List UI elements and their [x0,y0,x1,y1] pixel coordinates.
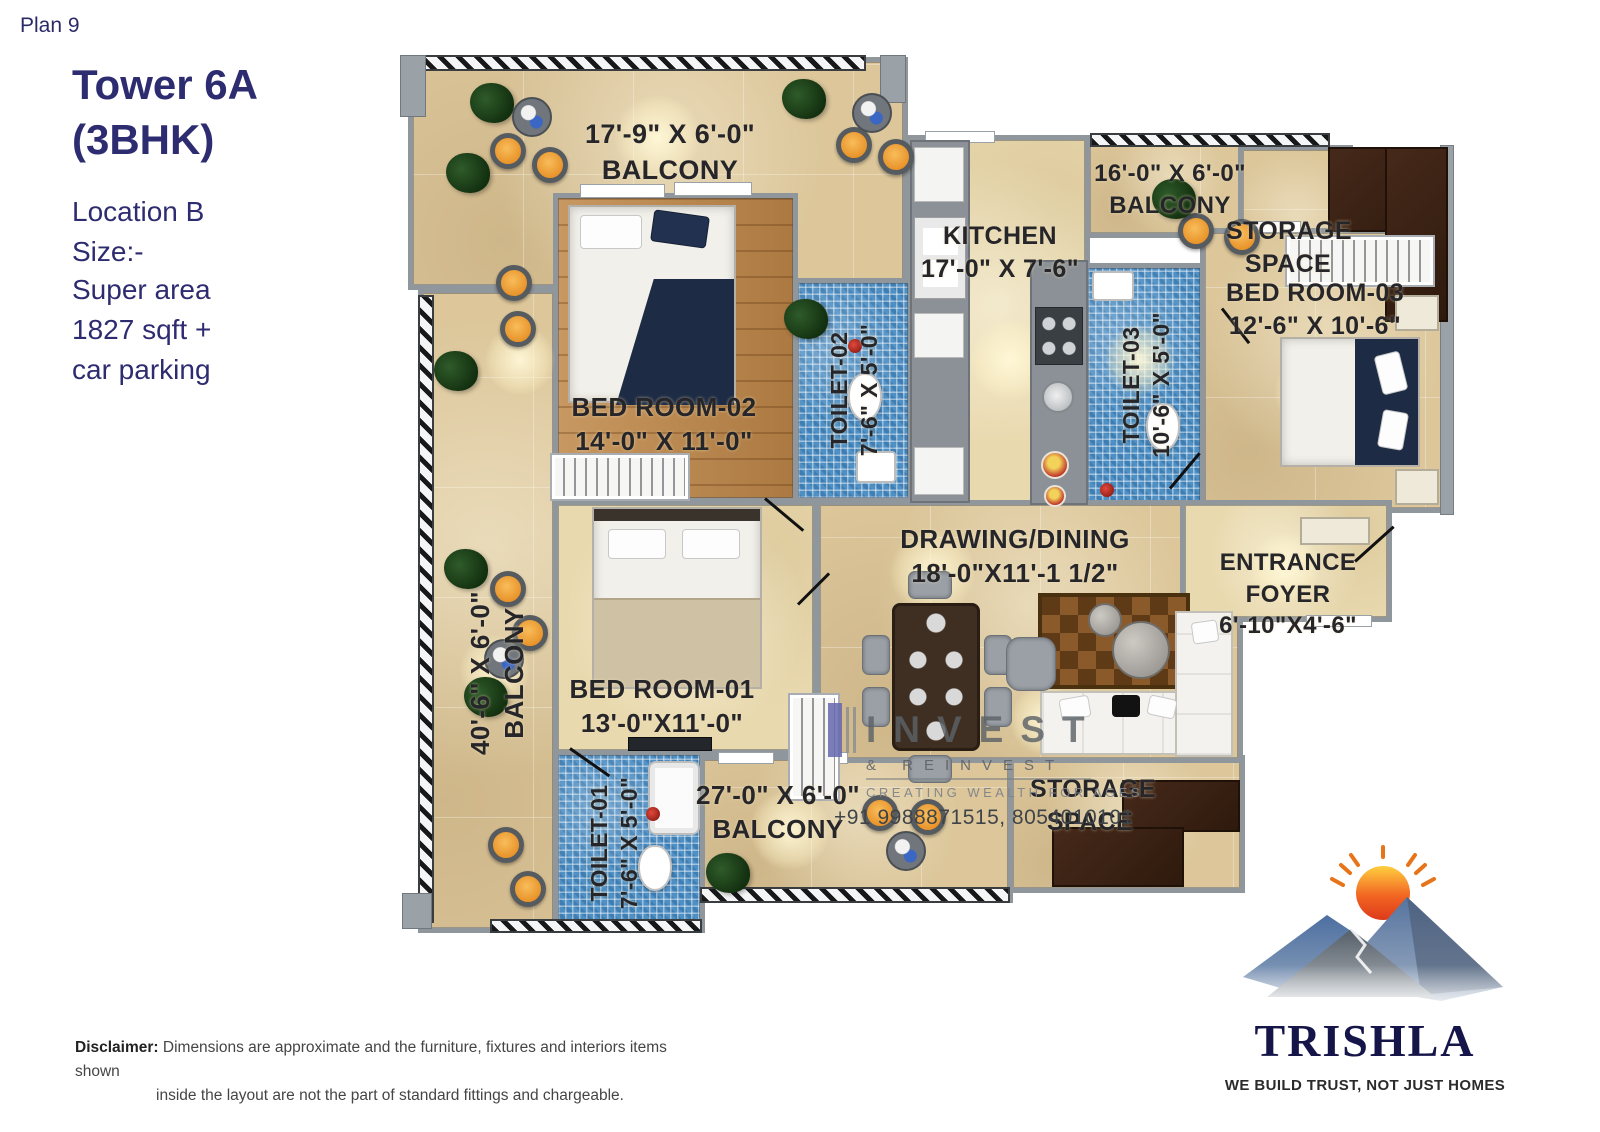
armchair [1006,637,1056,691]
railing-top-right [1090,133,1330,147]
disclaimer-line2: inside the layout are not the part of st… [75,1084,705,1108]
stool [496,265,532,301]
label-bed-room-01: BED ROOM-01 13'-0"X11'-0" [542,672,782,741]
mountain-sun-logo-icon [1215,845,1515,1013]
label-toilet-03: TOILET-03 10'-6" X 5'-0" [1116,290,1172,480]
nightstand [1395,469,1439,505]
location-line: Location B [72,192,204,232]
label-drawing-dining: DRAWING/DINING 18'-0"X11'-1 1/2" [865,522,1165,591]
label-kitchen: KITCHEN 17'-0" X 7'-6" [905,220,1095,286]
trishla-logo: TRISHLA WE BUILD TRUST, NOT JUST HOMES [1215,845,1515,1094]
label-bed-room-03: BED ROOM-03 12'-6" X 10'-6" [1205,277,1425,343]
gas-hob [1035,307,1083,365]
dresser [1300,517,1370,545]
super-area: Super area 1827 sqft + car parking [72,270,211,389]
plant [706,853,750,893]
page-title: Tower 6A (3BHK) [72,58,258,167]
dining-chair [984,687,1012,727]
railing-bottom [700,887,1010,903]
size-line: Size:- [72,232,204,272]
bed [1280,337,1420,467]
fruit-plate [1041,451,1069,479]
label-toilet-02: TOILET-02 7'-6" X 5'-0" [824,295,880,485]
stool [510,871,546,907]
label-balcony-bottom: 27'-0" X 6'-0" BALCONY [628,778,928,847]
plant [434,351,478,391]
flower-pot [1100,483,1114,497]
stool [488,827,524,863]
brand-name: TRISHLA [1215,1014,1515,1067]
window [718,752,774,764]
title-line2: (3BHK) [72,113,258,168]
disclaimer: Disclaimer: Dimensions are approximate a… [75,1036,705,1108]
plant [784,299,828,339]
coffee-table [1088,603,1122,637]
bed [592,507,762,689]
label-entrance-foyer: ENTRANCE FOYER 6'-10"X4'-6" [1183,547,1393,642]
pillow [580,215,642,249]
stool [878,139,914,175]
railing-left [418,295,434,923]
dining-table [892,603,980,751]
floor-plan: 17'-9" X 6'-0" BALCONY KITCHEN 17'-0" X … [400,55,1460,940]
pillar [880,55,906,103]
title-line1: Tower 6A [72,58,258,113]
wardrobe [550,453,690,501]
coffee-table [1112,621,1170,679]
railing-top [410,55,866,71]
disclaimer-line1: Disclaimer: Dimensions are approximate a… [75,1036,705,1084]
sofa-pillow-black [1112,695,1140,717]
refrigerator [914,147,964,202]
pillow [650,209,710,248]
label-balcony-top-right: 16'-0" X 6'-0" BALCONY [1080,158,1260,221]
brand-tagline: WE BUILD TRUST, NOT JUST HOMES [1215,1077,1515,1094]
bed-frame [594,509,760,521]
plan-label: Plan 9 [20,14,80,38]
label-balcony-left: 40'-6" X 6'-0" BALCONY [463,533,521,813]
pillow [682,529,740,559]
round-sink [1042,381,1074,413]
kitchen-cabinet [914,313,964,358]
side-table [852,93,892,133]
label-balcony-top: 17'-9" X 6'-0" BALCONY [520,117,820,188]
fruit-plate [1044,485,1066,507]
blanket [616,279,734,405]
dining-chair [862,635,890,675]
pillow [608,529,666,559]
kitchen-cabinet [914,447,964,495]
bed [568,205,736,403]
label-toilet-01: TOILET-01 7'-6" X 5'-0" [584,748,640,938]
plant [470,83,514,123]
pillar [400,55,426,117]
plant [782,79,826,119]
dining-chair [862,687,890,727]
label-bed-room-02: BED ROOM-02 14'-0" X 11'-0" [544,390,784,459]
label-storage-top: STORAGE SPACE [1226,215,1350,281]
pillar [402,893,432,929]
label-storage-bottom: STORAGE SPACE [1030,773,1150,839]
stool [500,311,536,347]
plant [446,153,490,193]
location-size: Location B Size:- [72,192,204,272]
disclaimer-label: Disclaimer: [75,1039,159,1056]
